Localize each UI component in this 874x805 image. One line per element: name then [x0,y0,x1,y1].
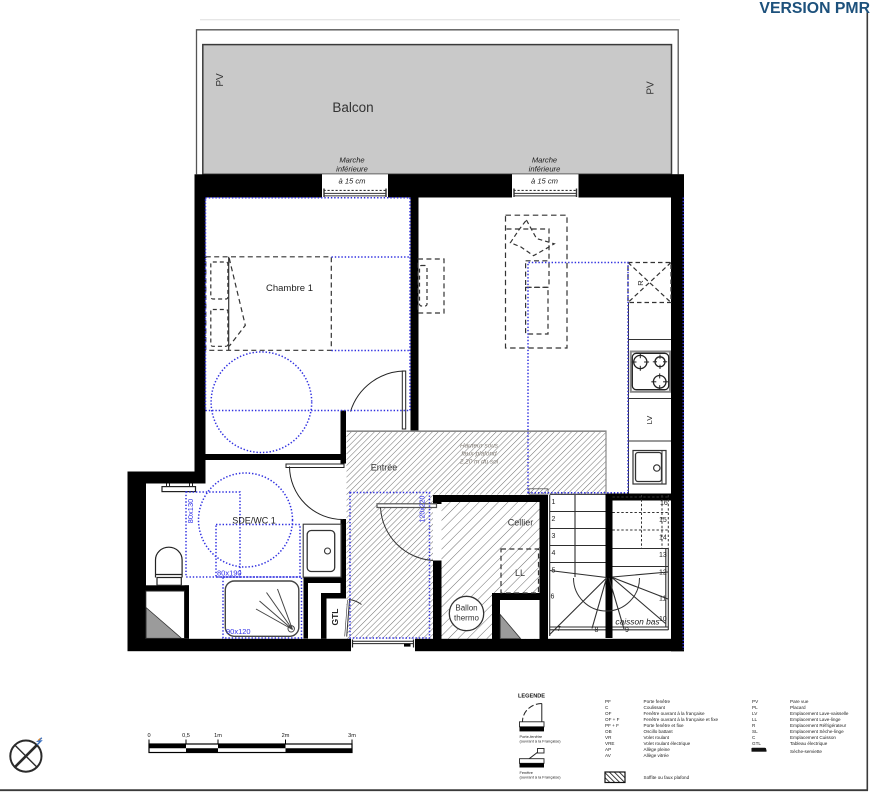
svg-text:5: 5 [552,568,556,575]
svg-text:VRE: VRE [605,741,614,746]
svg-text:15: 15 [659,517,667,524]
svg-text:Coulissant: Coulissant [644,705,666,710]
svg-text:2: 2 [552,516,556,523]
svg-text:3m: 3m [348,733,356,739]
svg-text:VERSION PMR: VERSION PMR [759,0,870,17]
svg-text:GTL: GTL [752,741,761,746]
svg-text:80x190: 80x190 [217,569,242,578]
svg-text:à 15 cm: à 15 cm [531,177,558,186]
svg-text:LEGENDE: LEGENDE [518,694,545,700]
svg-text:0,5: 0,5 [182,733,190,739]
svg-text:9: 9 [625,627,629,634]
svg-text:Soffite ou faux plafond: Soffite ou faux plafond [644,775,690,780]
svg-text:PV: PV [752,699,759,704]
svg-text:Tableau électrique: Tableau électrique [790,741,828,746]
svg-text:AV: AV [605,753,612,758]
svg-text:2m: 2m [282,733,290,739]
svg-text:6: 6 [551,594,555,601]
svg-text:(ouvrant à la Française): (ouvrant à la Française) [520,738,562,743]
svg-text:Sèche-serviette: Sèche-serviette [790,749,822,754]
svg-text:AP: AP [605,747,611,752]
svg-text:VR: VR [605,735,612,740]
svg-text:13: 13 [659,552,667,559]
svg-text:11: 11 [659,596,666,603]
svg-text:PV: PV [646,81,657,95]
svg-text:0: 0 [147,733,150,739]
svg-text:faux-plafond: faux-plafond [461,451,497,458]
svg-text:16: 16 [660,500,668,507]
svg-text:Allège pleine: Allège pleine [644,747,671,752]
svg-text:2,20 m du sol: 2,20 m du sol [459,459,499,466]
svg-text:80x130: 80x130 [186,499,195,524]
svg-text:Fenêtre ouvrant à la française: Fenêtre ouvrant à la française et fixe [644,717,719,722]
svg-text:PV: PV [215,73,226,87]
svg-text:inférieure: inférieure [336,165,368,174]
svg-text:LL: LL [515,568,525,578]
svg-text:OF: OF [605,711,612,716]
svg-text:(ouvrant à la Française): (ouvrant à la Française) [520,774,562,779]
svg-text:12: 12 [659,570,667,577]
svg-text:Chambre 1: Chambre 1 [266,283,313,294]
svg-text:Balcon: Balcon [332,100,373,115]
svg-text:LV: LV [645,416,654,425]
svg-text:LL: LL [752,717,758,722]
svg-text:Volet roulant: Volet roulant [644,735,670,740]
svg-text:SDE/WC 1: SDE/WC 1 [232,516,276,526]
svg-text:14: 14 [659,535,667,542]
svg-text:Emplacement Sèche-linge: Emplacement Sèche-linge [790,729,844,734]
svg-text:Placard: Placard [790,705,806,710]
svg-text:1: 1 [552,499,556,506]
svg-text:Marche: Marche [339,156,364,165]
svg-text:Fenêtre ouvrant à la française: Fenêtre ouvrant à la française [644,711,705,716]
svg-text:SL: SL [752,729,758,734]
svg-text:4: 4 [552,550,556,557]
svg-text:Porte fenêtre et fixe: Porte fenêtre et fixe [644,723,685,728]
svg-text:PF: PF [605,699,611,704]
svg-text:R: R [636,280,645,286]
svg-text:Oscillo battant: Oscillo battant [644,729,674,734]
svg-text:Emplacement Cuisson: Emplacement Cuisson [790,735,836,740]
svg-text:Pare vue: Pare vue [790,699,809,704]
svg-text:120x220: 120x220 [420,495,427,522]
svg-text:1m: 1m [214,733,222,739]
svg-text:7: 7 [557,626,561,633]
svg-text:à 15 cm: à 15 cm [338,177,365,186]
svg-text:Ballon: Ballon [455,604,477,613]
svg-text:Cellier: Cellier [508,518,534,528]
svg-text:PF + F: PF + F [605,723,619,728]
svg-text:90x120: 90x120 [226,627,251,636]
svg-text:caisson bas: caisson bas [615,617,660,627]
svg-text:GTL: GTL [330,609,340,626]
svg-text:OB: OB [605,729,612,734]
svg-text:Hauteur sous: Hauteur sous [460,443,499,450]
svg-text:Porte fenêtre: Porte fenêtre [644,699,671,704]
svg-text:Volet roulant électrique: Volet roulant électrique [644,741,691,746]
svg-text:Emplacement Lave-vaisselle: Emplacement Lave-vaisselle [790,711,849,716]
svg-text:3: 3 [552,533,556,540]
svg-text:8: 8 [595,627,599,634]
svg-text:OF + F: OF + F [605,717,620,722]
svg-text:Emplacement Lave-linge: Emplacement Lave-linge [790,717,841,722]
svg-text:Marche: Marche [532,156,557,165]
svg-text:Entrée: Entrée [371,463,398,473]
svg-text:PL: PL [752,705,758,710]
svg-text:Allège vitrée: Allège vitrée [644,753,670,758]
svg-text:Emplacement Réfrigérateur: Emplacement Réfrigérateur [790,723,847,728]
svg-text:inférieure: inférieure [529,165,561,174]
svg-text:10: 10 [659,616,667,623]
svg-text:thermo: thermo [454,614,479,623]
